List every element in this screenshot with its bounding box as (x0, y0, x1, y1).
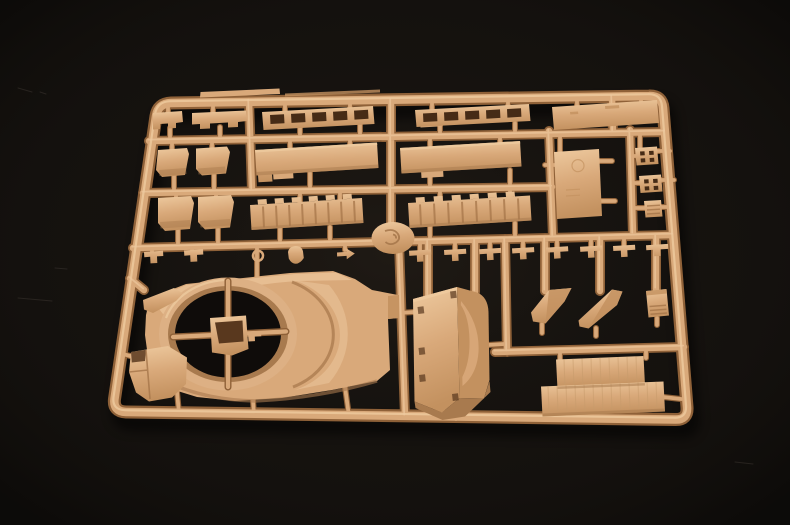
hull-right-step (388, 295, 399, 319)
part-basket-opening (215, 321, 244, 344)
screenshot-root (0, 0, 790, 525)
part-square-b6b (639, 175, 663, 194)
sprue-photo-svg (0, 0, 790, 525)
part-wing2-notch (131, 350, 146, 363)
part-square-b6a (635, 147, 659, 166)
sprue-disc (372, 222, 415, 254)
